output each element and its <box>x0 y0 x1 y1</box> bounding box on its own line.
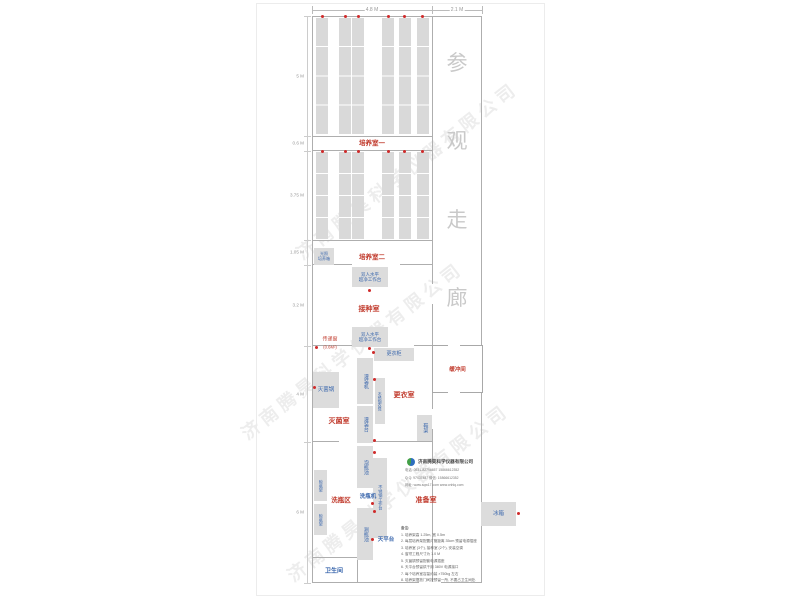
dimension-label-left: 5 M <box>295 74 305 79</box>
notes-item: 7. 每个培养室容量约装 ×750kg 左右 <box>401 571 458 577</box>
corridor-label-char: 参 <box>447 47 468 77</box>
label-bottle-washer: 洗瓶机 <box>360 492 377 500</box>
equipment-clean-bench-2: 双人水平超净工作台 <box>352 327 388 347</box>
equipment-steel-bench: 不锈钢衣凳 <box>375 378 385 424</box>
dimension-tick <box>304 240 311 241</box>
culture-rack <box>352 18 364 135</box>
power-outlet-dot <box>368 347 371 350</box>
wall <box>432 16 433 284</box>
culture-rack <box>352 152 364 240</box>
wall <box>481 16 482 583</box>
buffer-room-door-notch <box>448 391 460 394</box>
notes-item: 1. 培养架高 1.25m, 宽 0.5m <box>401 532 445 538</box>
culture-rack <box>399 18 411 135</box>
equipment-sterilizer: 灭菌锅 <box>313 372 339 408</box>
power-outlet-dot <box>357 15 360 18</box>
power-outlet-dot <box>357 150 360 153</box>
equipment-label-dry-rack-2: 晾瓶架 <box>318 514 323 526</box>
dimension-tick <box>304 346 311 347</box>
equipment-label-clean-bench-2: 超净工作台 <box>352 337 388 342</box>
power-outlet-dot <box>344 15 347 18</box>
company-contact-line: 网址: www.sqw17.com www.cnhlq.com <box>405 484 463 487</box>
room-label: 洗瓶区 <box>331 494 351 504</box>
power-outlet-dot <box>321 150 324 153</box>
label-pass-window-size: (0.6M²) <box>323 345 337 350</box>
dimension-label-left: 3.75 M <box>289 193 305 198</box>
notes-item: 4. 窗帘工程尺寸为 1.0 M <box>401 551 440 557</box>
dimension-label-top: 4.8 M <box>365 7 380 13</box>
equipment-filling-machine: 灌装机 <box>357 358 373 404</box>
equipment-label-dry-rack-1: 晾瓶架 <box>318 480 323 492</box>
equipment-locker: 更衣柜 <box>374 348 414 361</box>
power-outlet-dot <box>373 378 376 381</box>
power-outlet-dot <box>368 289 371 292</box>
room-label: 准备室 <box>416 495 437 505</box>
dimension-label-left: 1.05 M <box>289 250 305 255</box>
culture-rack <box>339 152 351 240</box>
corridor-label-char: 观 <box>447 125 468 155</box>
culture-rack <box>382 18 394 135</box>
dimension-tick <box>312 6 313 14</box>
equipment-label-shoe-rack: 鞋架 <box>422 423 428 433</box>
power-outlet-dot <box>371 502 374 505</box>
buffer-room-door-notch <box>448 344 460 347</box>
label-bathroom: 卫生间 <box>325 566 343 575</box>
notes-item: 8. 培养架摆放门间按预留一所, 不要占卫生间处. <box>401 577 476 583</box>
culture-rack <box>339 18 351 135</box>
equipment-label-filling-machine: 灌装机 <box>362 374 368 389</box>
company-name: 济南腾昊科学仪器有限公司 <box>418 459 473 465</box>
equipment-label-light-incubator: 培养箱 <box>314 257 334 262</box>
wall <box>400 264 432 265</box>
equipment-label-locker: 更衣柜 <box>374 352 414 358</box>
power-outlet-dot <box>421 15 424 18</box>
equipment-label-sterilizer: 灭菌锅 <box>313 387 339 393</box>
culture-rack <box>417 18 429 135</box>
equipment-label-steel-bench: 不锈钢衣凳 <box>378 392 382 411</box>
power-outlet-dot <box>321 15 324 18</box>
dimension-label-top: 2.1 M <box>450 7 465 13</box>
wall <box>357 557 358 583</box>
room-label: 培养室二 <box>359 251 385 261</box>
equipment-filling-table: 灌装台 <box>357 406 373 443</box>
power-outlet-dot <box>387 15 390 18</box>
wall <box>414 345 432 346</box>
notes-item: 3. 培养室 (3个), 接种室 (2个), 安装空调 <box>401 545 463 551</box>
label-pass-window: 传递窗 <box>322 336 337 343</box>
dimension-label-left: 6 M <box>295 510 305 515</box>
wall <box>312 441 339 442</box>
culture-rack <box>382 152 394 240</box>
dimension-tick <box>304 151 311 152</box>
company-contact-line: Q Q: 97437487 微信: 15866612352 <box>405 477 459 480</box>
buffer-room-label: 缓冲间 <box>449 365 466 373</box>
equipment-label-soak-pool: 泡瓶池 <box>362 460 368 475</box>
company-contact-line: 电话: 0531-82796657 15866612352 <box>405 469 459 472</box>
power-outlet-dot <box>373 439 376 442</box>
corridor-label-char: 走 <box>447 204 468 234</box>
wall <box>432 429 433 462</box>
dimension-tick <box>304 265 311 266</box>
dimension-tick <box>304 442 311 443</box>
power-outlet-dot <box>373 510 376 513</box>
dimension-tick <box>304 16 311 17</box>
wall <box>312 16 482 17</box>
equipment-label-rinse-pool: 涮瓶池 <box>362 527 368 542</box>
power-outlet-dot <box>315 346 318 349</box>
culture-rack <box>399 152 411 240</box>
power-outlet-dot <box>344 150 347 153</box>
power-outlet-dot <box>403 15 406 18</box>
equipment-dry-rack-2: 晾瓶架 <box>314 504 327 535</box>
power-outlet-dot <box>403 150 406 153</box>
dimension-tick <box>432 6 433 14</box>
notes-item: 2. 每层培养架配置灯管距离 35cm 预留电源插座 <box>401 538 477 544</box>
room-label: 灭菌室 <box>329 416 350 426</box>
dimension-label-left: 0.6 M <box>292 141 306 146</box>
equipment-light-incubator: 光照培养箱 <box>314 248 334 265</box>
power-outlet-dot <box>373 451 376 454</box>
equipment-clean-bench-1: 双人水平超净工作台 <box>352 267 388 287</box>
dimension-tick <box>482 6 483 14</box>
wall <box>432 393 433 409</box>
equipment-label-refrigerator: 冰箱 <box>481 511 516 517</box>
culture-rack <box>316 152 328 240</box>
notes-item: 6. 天平台预留烘干用 380V 电源接口 <box>401 564 459 570</box>
wall <box>312 557 358 558</box>
power-outlet-dot <box>517 512 520 515</box>
dimension-tick <box>304 136 311 137</box>
culture-rack <box>316 18 328 135</box>
room-label: 接种室 <box>359 304 380 314</box>
company-logo <box>407 458 415 466</box>
dimension-label-left: 3.2 M <box>292 303 306 308</box>
notes-item: 5. 灭菌锅预留配套电源插座 <box>401 558 445 564</box>
notes-header: 备注: <box>401 525 409 531</box>
power-outlet-dot <box>372 351 375 354</box>
power-outlet-dot <box>371 538 374 541</box>
power-outlet-dot <box>421 150 424 153</box>
equipment-label-clean-bench-1: 超净工作台 <box>352 277 388 282</box>
power-outlet-dot <box>387 150 390 153</box>
equipment-label-filling-table: 灌装台 <box>362 417 368 432</box>
wall <box>312 150 432 151</box>
equipment-refrigerator: 冰箱 <box>481 502 516 526</box>
dimension-label-left: 4 M <box>295 392 305 397</box>
room-label: 更衣室 <box>394 390 415 400</box>
equipment-soak-pool: 泡瓶池 <box>357 446 373 488</box>
wall <box>432 304 433 345</box>
dimension-tick <box>304 583 311 584</box>
wall <box>312 240 432 241</box>
dimension-line-left <box>307 16 308 583</box>
equipment-shoe-rack: 鞋架 <box>417 415 432 441</box>
equipment-label-steel-worktable: 不锈钢工作台 <box>378 485 383 510</box>
power-outlet-dot <box>313 386 316 389</box>
floorplan-canvas: 济南腾昊科学仪器有限公司济南腾昊科学仪器有限公司济南腾昊科学仪器有限公司4.8 … <box>0 0 800 600</box>
room-label: 培养室一 <box>359 137 385 147</box>
equipment-dry-rack-1: 晾瓶架 <box>314 470 327 501</box>
label-balance-table: 天平台 <box>378 535 395 543</box>
corridor-label-char: 廊 <box>447 282 468 312</box>
culture-rack <box>417 152 429 240</box>
equipment-rinse-pool: 涮瓶池 <box>357 508 373 560</box>
